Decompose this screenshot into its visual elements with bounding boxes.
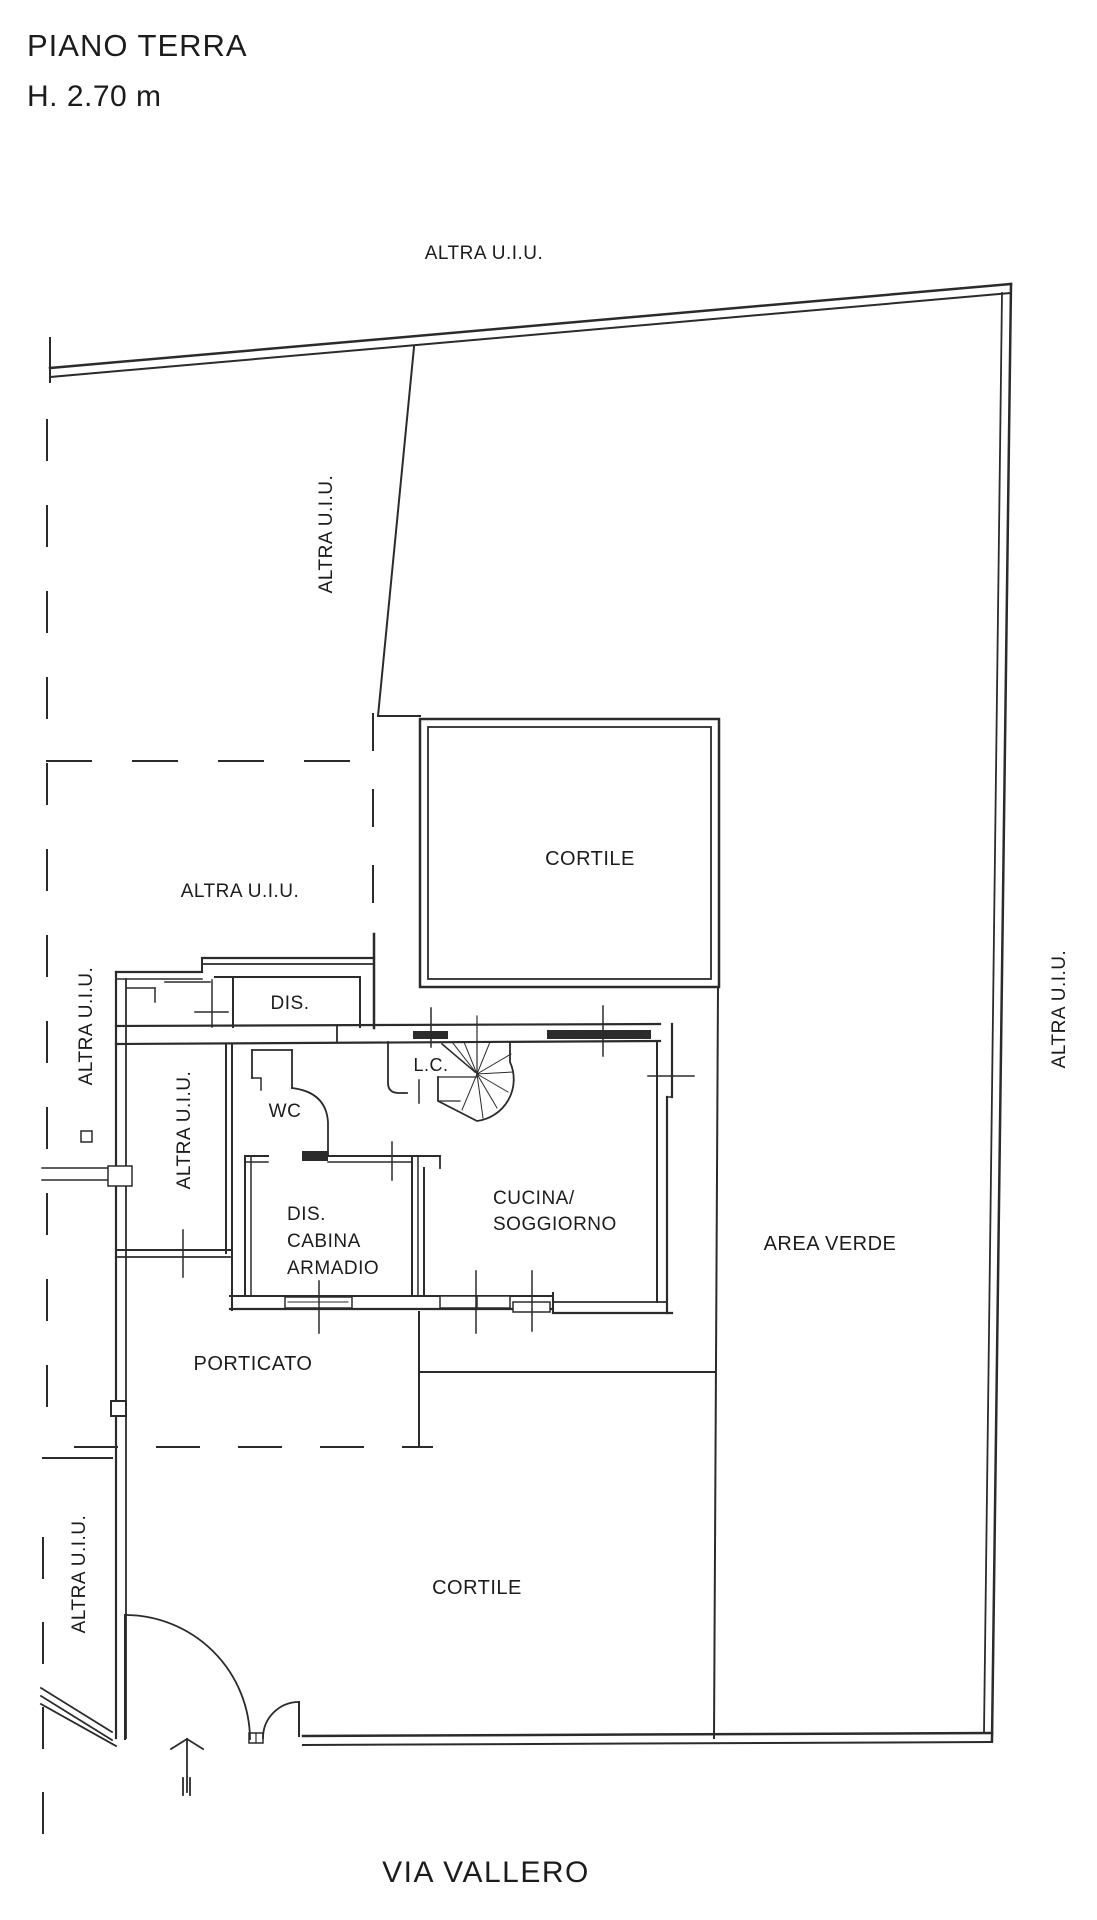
room-label-dis: DIS. [240,993,340,1015]
cortile-area-verde-divider [419,987,718,1738]
room-label-dis-cabina-line2: CABINA [287,1228,379,1255]
room-label-porticato: PORTICATO [153,1353,353,1376]
street-wall [41,1615,992,1795]
label-altra-uiu-left-lower: ALTRA U.I.U. [69,1504,91,1644]
page-title: PIANO TERRA [27,28,248,64]
label-altra-uiu-right: ALTRA U.I.U. [1049,939,1071,1079]
label-altra-uiu-center: ALTRA U.I.U. [140,881,340,903]
room-label-area-verde: AREA VERDE [730,1233,930,1256]
boundary-left-dashed [42,420,112,1878]
room-label-lc: L.C. [381,1055,481,1076]
label-altra-uiu-left-upper: ALTRA U.I.U. [76,956,98,1096]
label-altra-uiu-tall: ALTRA U.I.U. [316,464,338,604]
west-wall [108,972,132,1738]
room-label-dis-cabina-line1: DIS. [287,1201,379,1228]
label-altra-uiu-top: ALTRA U.I.U. [384,243,584,265]
boundary-right [984,284,1011,1741]
floorplan-drawing [0,0,1097,1920]
room-label-cortile-lower: CORTILE [377,1577,577,1600]
room-label-cucina-soggiorno: CUCINA/ SOGGIORNO [493,1186,617,1238]
floorplan-page: PIANO TERRA H. 2.70 m ALTRA U.I.U. ALTRA… [0,0,1097,1920]
room-label-wc: WC [235,1101,335,1123]
spiral-stair [388,1042,514,1121]
room-label-cucina-line1: CUCINA/ [493,1186,617,1212]
room-label-dis-cabina-armadio: DIS. CABINA ARMADIO [287,1201,379,1282]
label-via-vallero: VIA VALLERO [336,1856,636,1890]
label-altra-uiu-room: ALTRA U.I.U. [174,1060,196,1200]
room-label-dis-cabina-line3: ARMADIO [287,1255,379,1282]
east-wall [648,1024,694,1313]
room-label-cortile-upper: CORTILE [490,848,690,871]
boundary-top [50,284,1011,382]
room-label-cucina-line2: SOGGIORNO [493,1212,617,1238]
page-subtitle-height: H. 2.70 m [27,80,162,114]
